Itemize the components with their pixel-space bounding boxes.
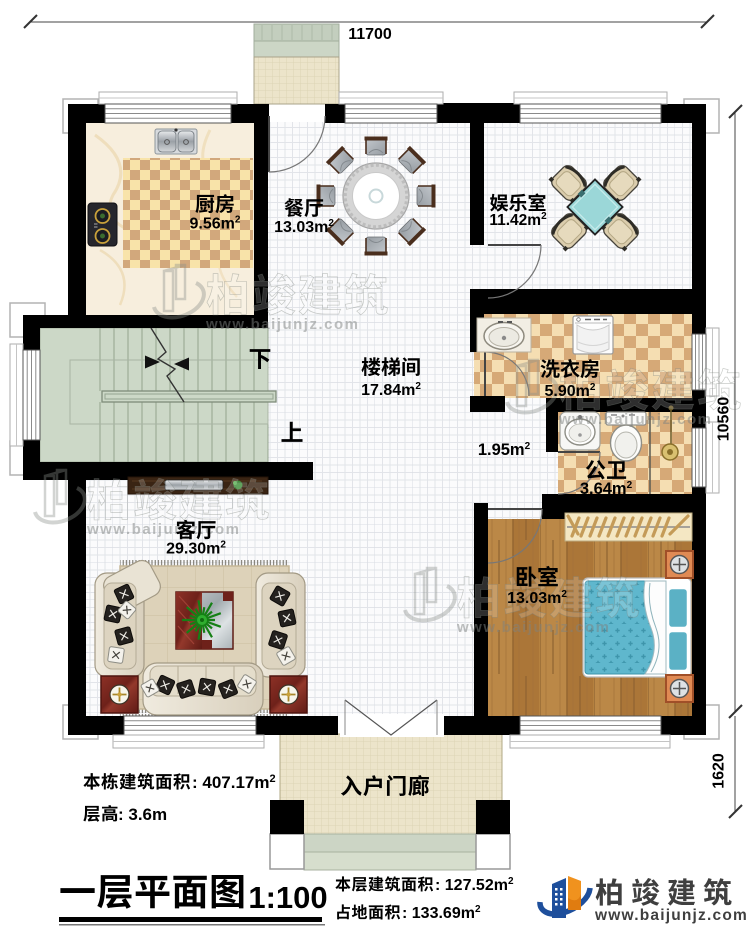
svg-text:29.30m2: 29.30m2 <box>166 539 226 557</box>
svg-text:www.baijunjz.com: www.baijunjz.com <box>205 316 359 333</box>
svg-text:11.42m2: 11.42m2 <box>489 211 547 229</box>
svg-text:www.baijunjz.com: www.baijunjz.com <box>558 411 712 428</box>
svg-text:www.baijunjz.com: www.baijunjz.com <box>86 521 240 538</box>
svg-text:13.03m2: 13.03m2 <box>507 589 567 607</box>
svg-text:: 133.69m2: : 133.69m2 <box>402 904 481 922</box>
svg-text:1620: 1620 <box>711 753 728 789</box>
svg-text:www.baijunjz.com: www.baijunjz.com <box>456 619 610 636</box>
svg-text:13.03m2: 13.03m2 <box>274 218 334 236</box>
svg-text:: 407.17m2: : 407.17m2 <box>192 773 276 792</box>
svg-text:1.95m2: 1.95m2 <box>478 441 531 459</box>
svg-text:1:100: 1:100 <box>248 880 327 915</box>
svg-text:11700: 11700 <box>348 26 392 43</box>
svg-text:: 3.6m: : 3.6m <box>118 805 167 824</box>
svg-text:: 127.52m2: : 127.52m2 <box>435 876 514 894</box>
svg-text:www.baijunjz.com: www.baijunjz.com <box>594 907 748 924</box>
svg-text:9.56m2: 9.56m2 <box>190 214 241 232</box>
svg-text:5.90m2: 5.90m2 <box>545 382 596 400</box>
svg-text:10560: 10560 <box>716 397 733 442</box>
svg-text:3.64m2: 3.64m2 <box>580 480 633 498</box>
svg-text:17.84m2: 17.84m2 <box>361 381 421 399</box>
